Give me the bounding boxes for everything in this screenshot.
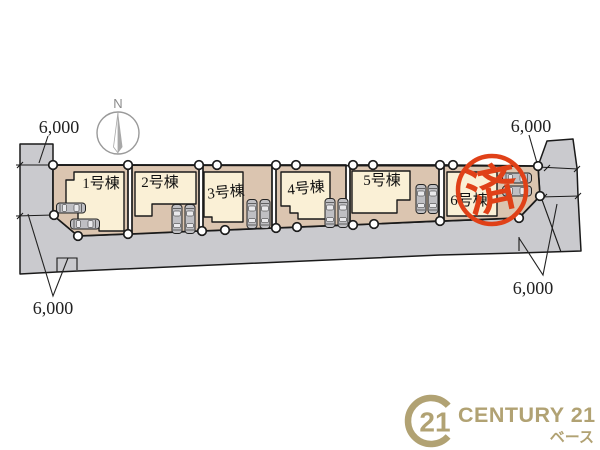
site-plan-svg: 1号棟 2号棟 3号棟 4号棟 5号棟 6号棟 6,000 6,000 6,00…	[0, 0, 600, 450]
car-icon	[57, 203, 86, 213]
car-icon	[325, 199, 335, 228]
boundary-marker-icon	[534, 162, 543, 171]
boundary-marker-icon	[436, 161, 445, 170]
sold-stamp: 済	[458, 156, 526, 225]
dimension-bottom-left: 6,000	[33, 298, 74, 318]
north-label: N	[113, 96, 122, 111]
car-icon	[247, 200, 257, 229]
boundary-marker-icon	[349, 221, 358, 230]
boundary-marker-icon	[50, 211, 59, 220]
boundary-marker-icon	[195, 161, 204, 170]
car-icon	[428, 185, 438, 214]
boundary-marker-icon	[74, 232, 83, 241]
boundary-marker-icon	[436, 217, 445, 226]
dimension-top-right: 6,000	[511, 116, 552, 136]
boundary-marker-icon	[293, 223, 302, 232]
boundary-marker-icon	[124, 161, 133, 170]
lot-3-label: 3号棟	[207, 182, 246, 202]
brand-wordmark: CENTURY 21	[458, 403, 596, 427]
boundary-marker-icon	[213, 161, 222, 170]
compass-needle-icon	[118, 112, 123, 153]
lot-1-label: 1号棟	[82, 175, 120, 192]
car-icon	[338, 199, 348, 228]
boundary-marker-icon	[369, 161, 378, 170]
century21-logo: 21 CENTURY 21 ベース	[399, 389, 596, 450]
site-plan-page: 1号棟 2号棟 3号棟 4号棟 5号棟 6号棟 6,000 6,000 6,00…	[0, 0, 600, 450]
boundary-marker-icon	[292, 161, 301, 170]
lot-2-label: 2号棟	[141, 174, 179, 191]
boundary-marker-icon	[370, 220, 379, 229]
car-icon	[416, 185, 426, 214]
compass: N	[97, 96, 139, 154]
compass-needle-icon	[114, 112, 119, 153]
boundary-marker-icon	[198, 227, 207, 236]
dimension-bottom-right: 6,000	[513, 278, 554, 298]
boundary-marker-icon	[349, 161, 358, 170]
seal-number: 21	[419, 407, 450, 438]
lot-5-label: 5号棟	[363, 172, 401, 189]
car-icon	[71, 219, 100, 229]
boundary-marker-icon	[536, 192, 545, 201]
boundary-marker-icon	[449, 161, 458, 170]
boundary-marker-icon	[272, 224, 281, 233]
boundary-marker-icon	[221, 226, 230, 235]
car-icon	[260, 200, 270, 229]
car-icon	[172, 205, 182, 234]
car-icon	[185, 205, 195, 234]
boundary-marker-icon	[124, 230, 133, 239]
boundary-marker-icon	[272, 161, 281, 170]
boundary-marker-icon	[49, 161, 58, 170]
century21-seal: 21	[399, 389, 464, 450]
brand-subname: ベース	[550, 429, 594, 446]
lot-4-label: 4号棟	[287, 178, 326, 198]
dimension-top-left: 6,000	[39, 117, 80, 137]
